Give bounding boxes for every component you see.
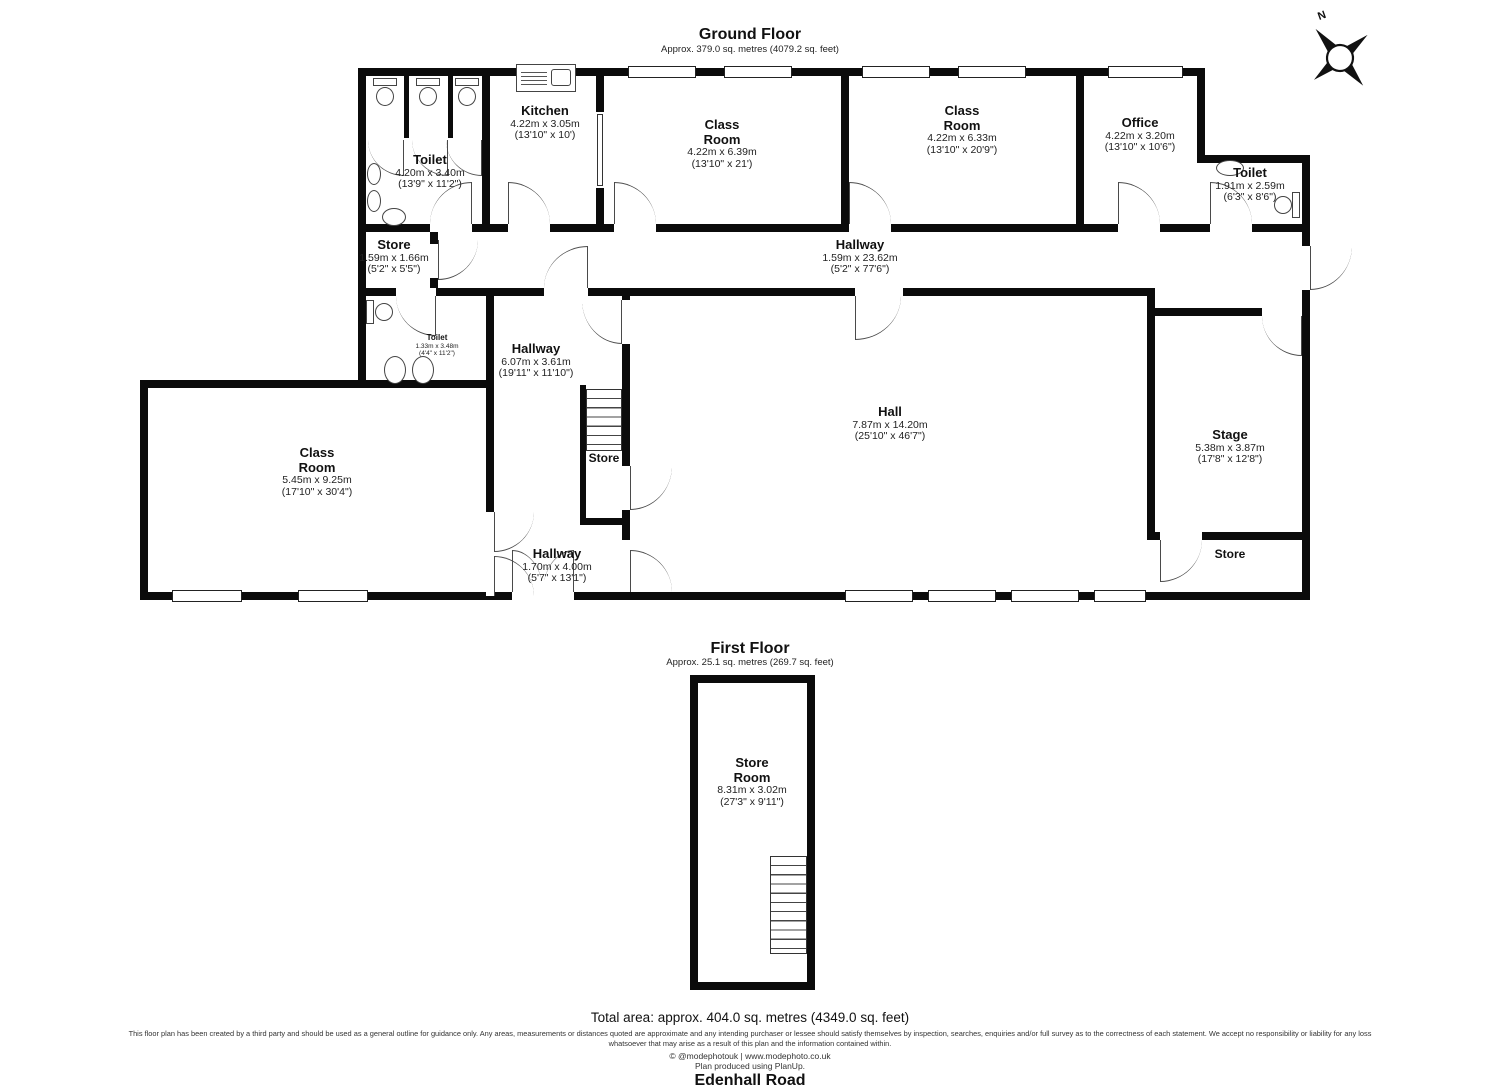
first-floor-subtitle: Approx. 25.1 sq. metres (269.7 sq. feet) xyxy=(400,657,1100,668)
toilet-icon xyxy=(382,208,406,226)
sink-icon xyxy=(551,69,571,86)
total-area-text: Total area: approx. 404.0 sq. metres (43… xyxy=(130,1010,1370,1025)
window xyxy=(172,590,242,602)
compass-rose: N xyxy=(1298,10,1388,100)
wall-segment xyxy=(358,224,1310,232)
wall-segment xyxy=(358,288,1155,296)
room-label-stage: Stage 5.38m x 3.87m (17'8" x 12'8") xyxy=(1165,428,1295,466)
door-opening xyxy=(544,288,588,296)
ground-floor-subtitle: Approx. 379.0 sq. metres (4079.2 sq. fee… xyxy=(400,44,1100,55)
wall-segment xyxy=(1147,308,1155,540)
window xyxy=(628,66,696,78)
room-label-toilet-ne: Toilet 1.91m x 2.59m (6'3" x 8'6") xyxy=(1185,166,1315,204)
sink-icon xyxy=(384,356,406,384)
room-label-store-stairs: Store xyxy=(564,452,644,465)
street-name: Edenhall Road xyxy=(400,1072,1100,1090)
room-label-store-se: Store xyxy=(1165,548,1295,561)
room-label-hallway-bottom: Hallway 1.70m x 4.00m (5'7" x 13'1") xyxy=(492,547,622,585)
toilet-icon xyxy=(366,300,374,324)
door-arc xyxy=(630,466,672,510)
wall-segment xyxy=(690,675,815,683)
software-credit-text: Plan produced using PlanUp. xyxy=(400,1061,1100,1071)
ground-floor-title: Ground Floor xyxy=(400,26,1100,44)
door-arc xyxy=(544,246,588,288)
door-opening xyxy=(430,224,472,232)
compass-icon xyxy=(1298,10,1383,95)
wall-segment xyxy=(841,68,849,232)
door-opening xyxy=(622,540,630,592)
room-label-office: Office 4.22m x 3.20m (13'10" x 10'6") xyxy=(1075,116,1205,154)
door-arc xyxy=(1310,246,1352,290)
wall-segment xyxy=(140,380,366,388)
window xyxy=(298,590,368,602)
door-opening xyxy=(508,224,550,232)
floor-plan-canvas: Ground Floor Approx. 379.0 sq. metres (4… xyxy=(0,0,1500,1090)
door-arc xyxy=(582,300,622,344)
door-opening xyxy=(1262,308,1302,316)
door-opening xyxy=(1210,224,1252,232)
window xyxy=(958,66,1026,78)
door-arc xyxy=(1262,316,1302,356)
toilet-icon xyxy=(375,303,393,321)
door-opening xyxy=(1302,246,1310,290)
wall-segment xyxy=(580,518,630,525)
toilet-icon xyxy=(458,87,476,106)
window xyxy=(928,590,996,602)
window xyxy=(845,590,913,602)
toilet-icon xyxy=(373,78,397,86)
door-arc xyxy=(614,182,656,224)
window xyxy=(724,66,792,78)
room-label-hall: Hall 7.87m x 14.20m (25'10" x 46'7") xyxy=(825,405,955,443)
door-opening xyxy=(1118,224,1160,232)
door-arc xyxy=(630,550,672,592)
door-opening xyxy=(855,288,903,296)
first-floor-title: First Floor xyxy=(400,640,1100,658)
door-opening xyxy=(614,224,656,232)
cubicle-divider-wall xyxy=(404,68,409,138)
window xyxy=(862,66,930,78)
door-arc xyxy=(849,182,891,224)
toilet-icon xyxy=(376,87,394,106)
room-label-store-room-ff: Store Room 8.31m x 3.02m (27'3" x 9'11") xyxy=(687,756,817,809)
room-label-store-left: Store 1.59m x 1.66m (5'2" x 5'5") xyxy=(329,238,459,276)
stairs xyxy=(586,389,622,451)
room-label-toilet-main: Toilet 4.20m x 3.40m (13'9" x 11'2") xyxy=(365,153,495,191)
disclaimer-text: This floor plan has been created by a th… xyxy=(128,1029,1372,1050)
window xyxy=(1011,590,1079,602)
toilet-icon xyxy=(416,78,440,86)
wall-segment xyxy=(140,380,148,600)
door-opening xyxy=(622,466,630,510)
door-opening xyxy=(849,224,891,232)
cubicle-divider-wall xyxy=(448,68,453,138)
wall-segment xyxy=(1197,155,1310,163)
door-arc xyxy=(494,512,534,552)
drainer-icon xyxy=(521,69,547,87)
room-label-kitchen: Kitchen 4.22m x 3.05m (13'10" x 10') xyxy=(480,104,610,142)
sink-icon xyxy=(367,190,381,212)
window xyxy=(1108,66,1183,78)
door-opening xyxy=(1160,532,1202,540)
toilet-icon xyxy=(419,87,437,106)
sink-icon xyxy=(412,356,434,384)
room-label-class-room-3: Class Room 5.45m x 9.25m (17'10" x 30'4"… xyxy=(252,446,382,499)
room-label-hallway-mid: Hallway 6.07m x 3.61m (19'11" x 11'10") xyxy=(471,342,601,380)
door-opening xyxy=(622,300,630,344)
room-label-class-room-2: Class Room 4.22m x 6.33m (13'10" x 20'9"… xyxy=(897,104,1027,157)
room-label-hallway-long: Hallway 1.59m x 23.62m (5'2" x 77'6") xyxy=(795,238,925,276)
credit-text: © @modephotouk | www.modephoto.co.uk xyxy=(400,1051,1100,1061)
window xyxy=(1094,590,1146,602)
door-arc xyxy=(855,296,901,340)
wall-segment xyxy=(690,675,698,990)
toilet-icon xyxy=(455,78,479,86)
stairs xyxy=(770,856,807,954)
wall-segment xyxy=(690,982,815,990)
wall-segment xyxy=(807,675,815,990)
door-opening xyxy=(396,288,436,296)
door-arc xyxy=(508,182,550,224)
wall-segment xyxy=(482,68,490,232)
door-arc xyxy=(1118,182,1160,224)
room-label-class-room-1: Class Room 4.22m x 6.39m (13'10" x 21') xyxy=(657,118,787,171)
door-arc xyxy=(396,296,436,336)
